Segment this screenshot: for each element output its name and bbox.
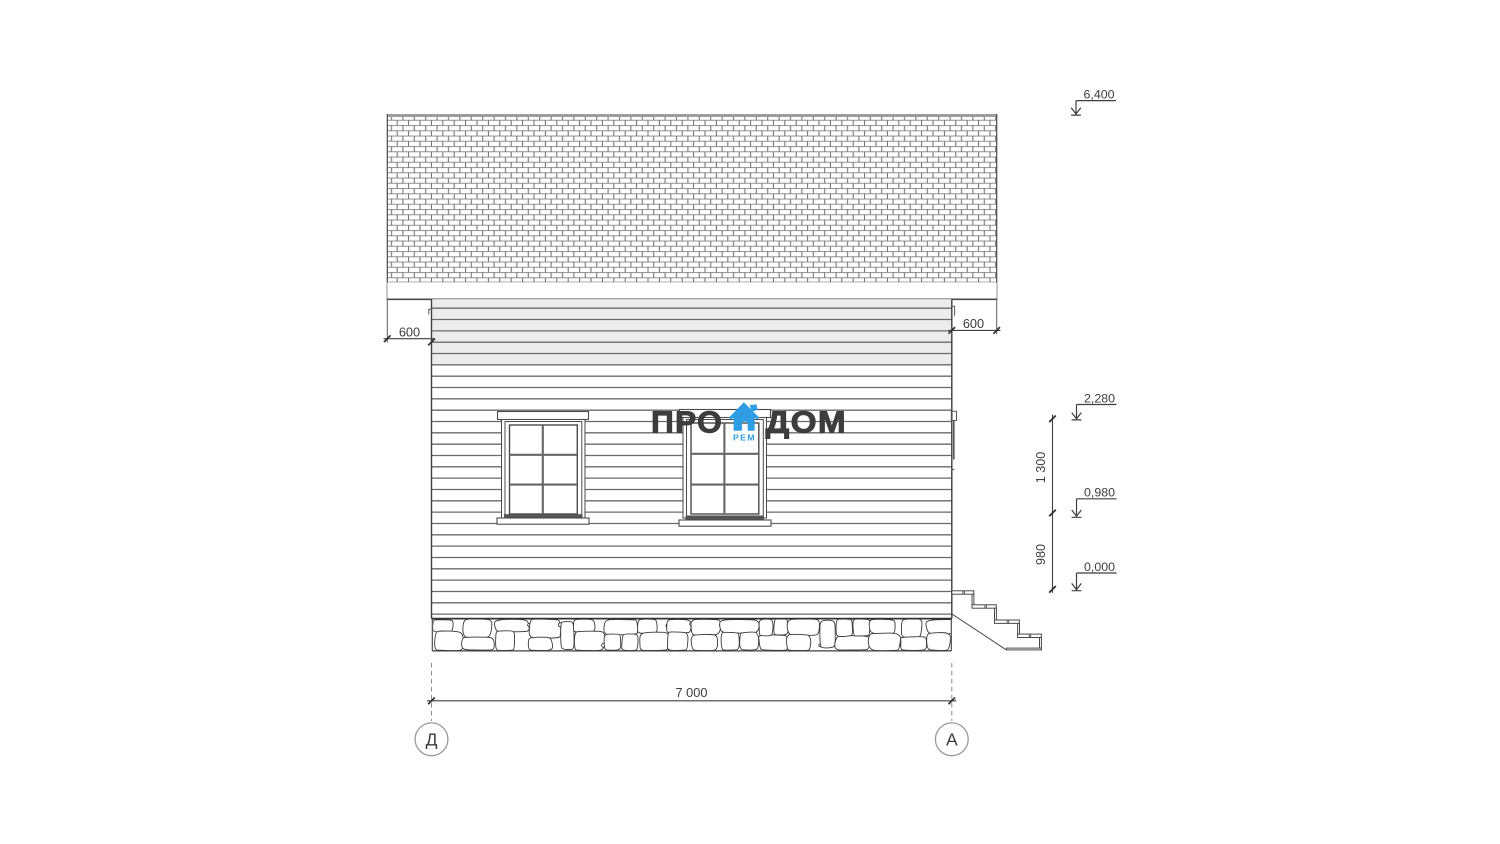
svg-text:980: 980	[1034, 544, 1048, 565]
svg-text:ДОМ: ДОМ	[766, 407, 848, 440]
svg-text:РЕМ: РЕМ	[733, 432, 756, 442]
svg-text:ПРО: ПРО	[651, 407, 723, 440]
svg-text:600: 600	[963, 316, 984, 331]
svg-text:А: А	[946, 730, 958, 750]
svg-text:0,980: 0,980	[1084, 486, 1115, 500]
svg-text:Д: Д	[426, 730, 438, 750]
svg-text:2,280: 2,280	[1084, 391, 1115, 405]
svg-text:600: 600	[399, 324, 420, 339]
svg-text:0,000: 0,000	[1084, 560, 1115, 574]
svg-text:6,400: 6,400	[1084, 87, 1115, 101]
svg-text:1 300: 1 300	[1034, 452, 1048, 484]
svg-text:7 000: 7 000	[675, 685, 707, 700]
